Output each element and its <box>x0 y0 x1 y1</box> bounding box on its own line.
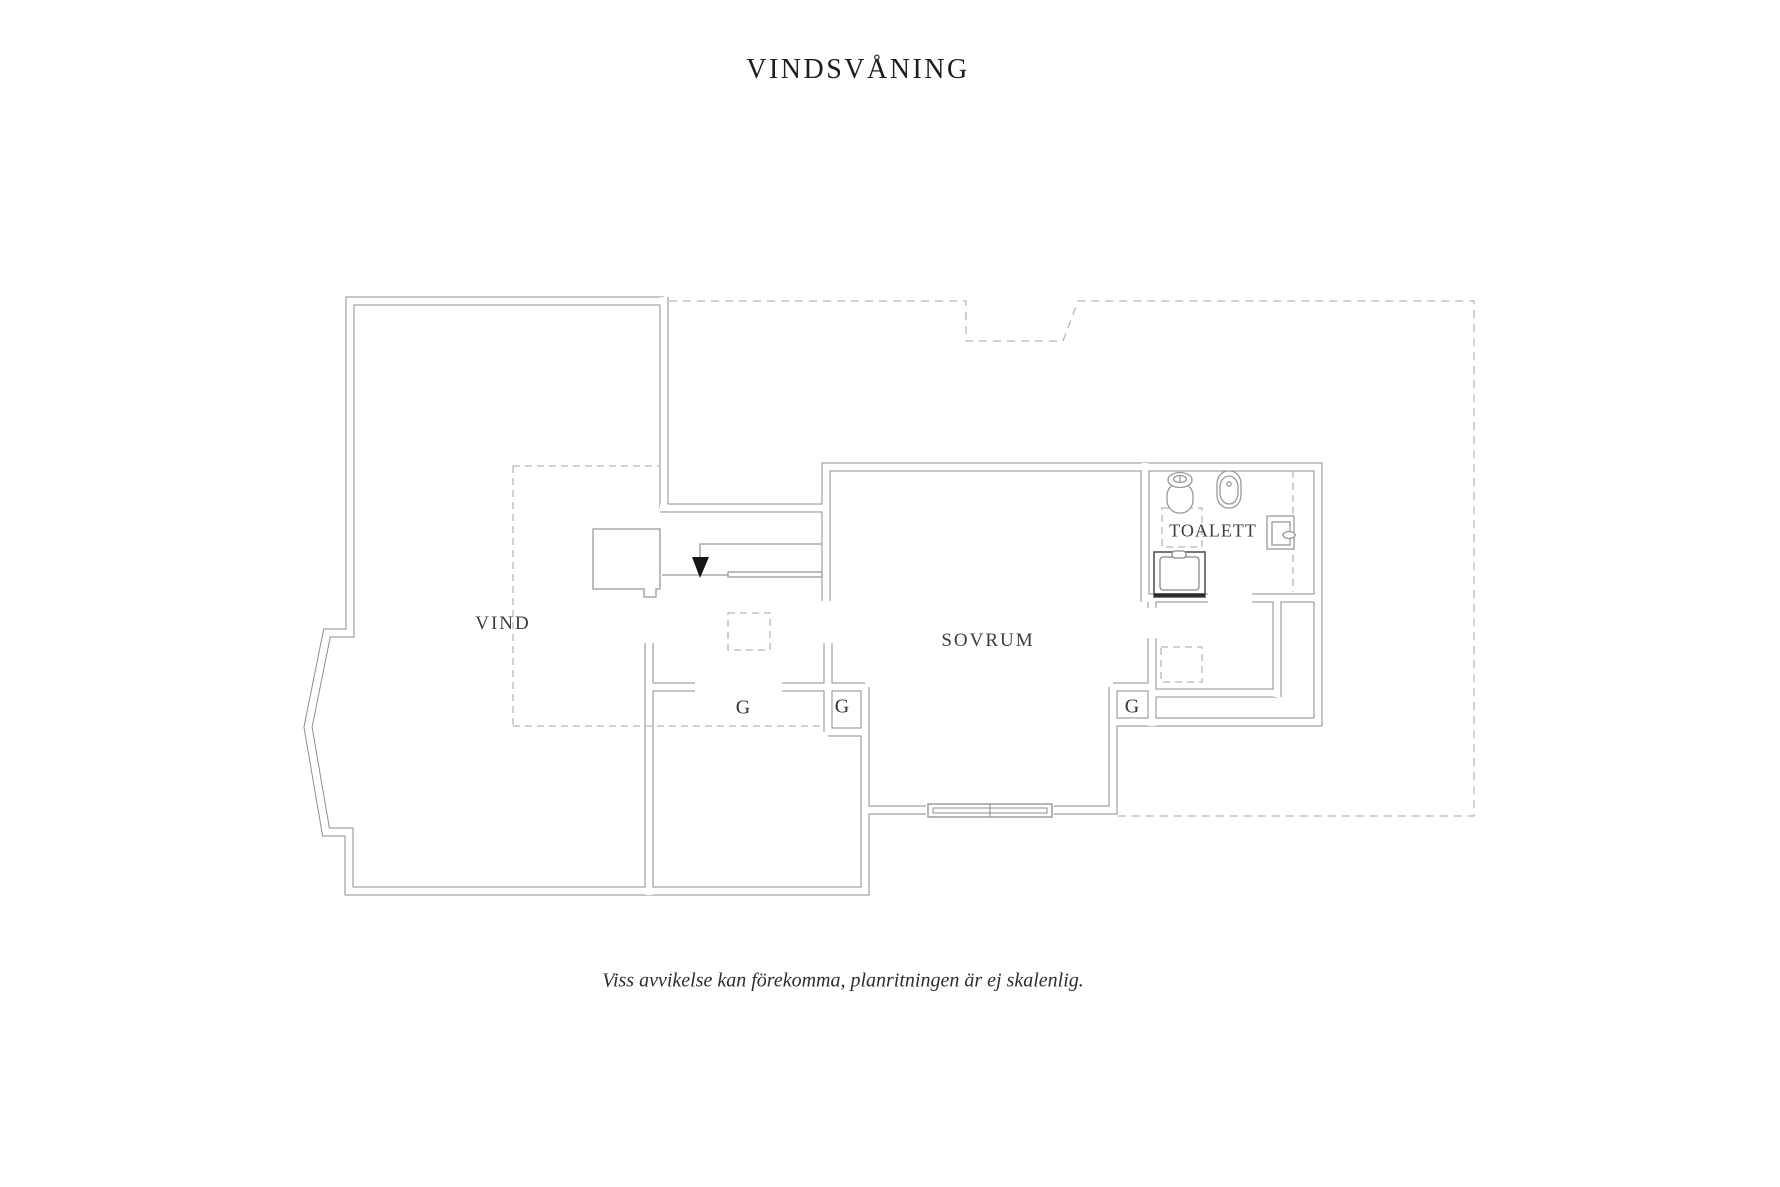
bidet-icon <box>1217 471 1241 508</box>
disclaimer-text: Viss avvikelse kan förekomma, planritnin… <box>602 970 1084 993</box>
floorplan-drawing <box>0 0 1780 1187</box>
dashed-box-dressing <box>1161 647 1202 682</box>
room-label-toalett: TOALETT <box>1169 521 1257 542</box>
roof-outline-dashed <box>669 301 1474 816</box>
staircase <box>593 529 822 597</box>
closet-label-g2: G <box>835 696 849 719</box>
room-label-sovrum: SOVRUM <box>941 630 1034 652</box>
chimney-dashed-box <box>728 613 770 650</box>
stair-rail <box>728 572 822 577</box>
stair-upper-edge <box>700 544 822 557</box>
sink-icon <box>1267 516 1296 549</box>
closet-label-g3: G <box>1125 696 1139 719</box>
closet-label-g1: G <box>736 697 750 720</box>
shower-cabinet-icon <box>1154 551 1205 597</box>
floorplan-page: VINDSVÅNING VIND SOVRUM TOALETT G G G Vi… <box>0 0 1780 1187</box>
stair-landing <box>593 529 660 597</box>
toilet-icon <box>1167 473 1193 514</box>
room-label-vind: VIND <box>475 613 531 635</box>
window-icon <box>926 802 1054 819</box>
page-title: VINDSVÅNING <box>746 54 970 86</box>
